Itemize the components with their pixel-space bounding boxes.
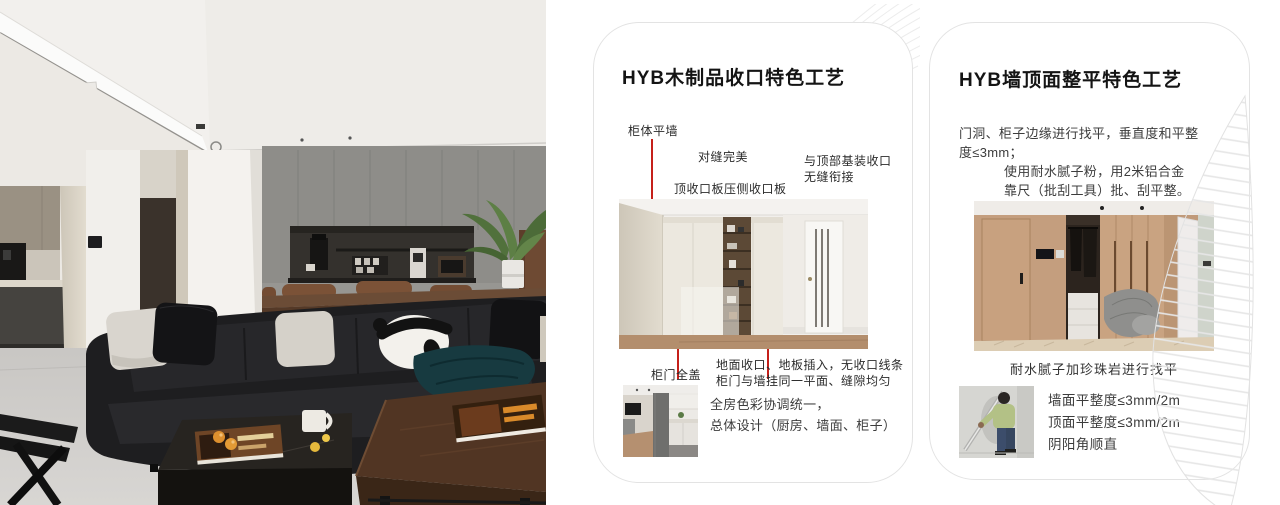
pillow-edge	[540, 316, 546, 362]
lemon	[310, 442, 320, 452]
page: HYB木制品收口特色工艺 柜体平墙 对缝完美 顶收口板压侧收口板 与顶部基装收口…	[0, 0, 1280, 505]
spec-ceiling-flatness: 顶面平整度≤3mm/2m	[1048, 412, 1180, 434]
callout-ceiling-joint: 与顶部基装收口 无缝衔接	[804, 153, 892, 185]
stone-coffee-table	[158, 410, 352, 505]
entry-image	[974, 201, 1214, 351]
design-note: 全房色彩协调统一， 总体设计（厨房、墙面、柜子）	[710, 394, 896, 436]
worker-head	[998, 392, 1010, 404]
process-card-wall: HYB墙顶面整平特色工艺 门洞、柜子边缘进行找平，垂直度和平整 度≤3mm； 使…	[929, 22, 1250, 480]
spec-list: 墙面平整度≤3mm/2m 顶面平整度≤3mm/2m 阴阳角顺直	[1048, 390, 1180, 456]
wardrobe-image	[619, 199, 868, 349]
drawer-unit	[1068, 293, 1098, 341]
entry-caption: 耐水腻子加珍珠岩进行找平	[974, 359, 1214, 378]
worker-jeans	[997, 428, 1006, 452]
callout-perfect-seams: 对缝完美	[698, 149, 748, 165]
process-card-wood: HYB木制品收口特色工艺 柜体平墙 对缝完美 顶收口板压侧收口板 与顶部基装收口…	[593, 22, 913, 483]
open-door	[1178, 217, 1198, 345]
wall-switch	[88, 236, 102, 248]
callout-cabinet-flush-wall: 柜体平墙	[628, 123, 678, 139]
card2-title: HYB墙顶面整平特色工艺	[959, 65, 1182, 92]
spec-wall-flatness: 墙面平整度≤3mm/2m	[1048, 390, 1180, 412]
spec-corners: 阴阳角顺直	[1048, 434, 1180, 456]
leveling-note-1: 门洞、柜子边缘进行找平，垂直度和平整 度≤3mm；	[959, 125, 1198, 162]
living-room-photo	[0, 0, 546, 505]
kitchen	[0, 186, 86, 350]
countertop	[0, 280, 64, 287]
callout-full-cover-door: 柜门全盖	[651, 367, 701, 383]
espresso-maker	[410, 248, 426, 278]
lemon	[322, 434, 330, 442]
worker-illustration	[959, 386, 1034, 458]
callout-floor-joint: 地面收口、地板插入，无收口线条 柜门与墙挂同一平面、缝隙均匀	[716, 358, 904, 389]
wardrobe-illustration	[619, 199, 868, 349]
worker-shirt	[993, 404, 1015, 429]
orange	[213, 431, 225, 443]
pillow-cream	[275, 311, 336, 368]
interior-door	[805, 221, 843, 333]
control-panel	[1036, 249, 1054, 259]
room-thumbnail-illustration	[623, 385, 698, 457]
coffee-machine-kitchen	[0, 243, 26, 281]
base-cabinets	[0, 287, 64, 344]
worker-thumbnail	[959, 386, 1034, 458]
upper-cabinets	[0, 186, 60, 250]
orange	[225, 438, 237, 450]
mug	[302, 410, 326, 432]
callout-top-panel: 顶收口板压侧收口板	[674, 181, 787, 197]
leveling-note-2: 使用耐水腻子粉，用2米铝合金 靠尺（批刮工具）批、刮平整。	[1004, 163, 1190, 200]
pillow-black	[152, 302, 218, 366]
card1-title: HYB木制品收口特色工艺	[622, 63, 845, 90]
entry-illustration	[974, 201, 1214, 351]
wood-floor	[619, 335, 868, 349]
room-thumbnail	[623, 385, 698, 457]
glass-wall	[1198, 215, 1214, 341]
